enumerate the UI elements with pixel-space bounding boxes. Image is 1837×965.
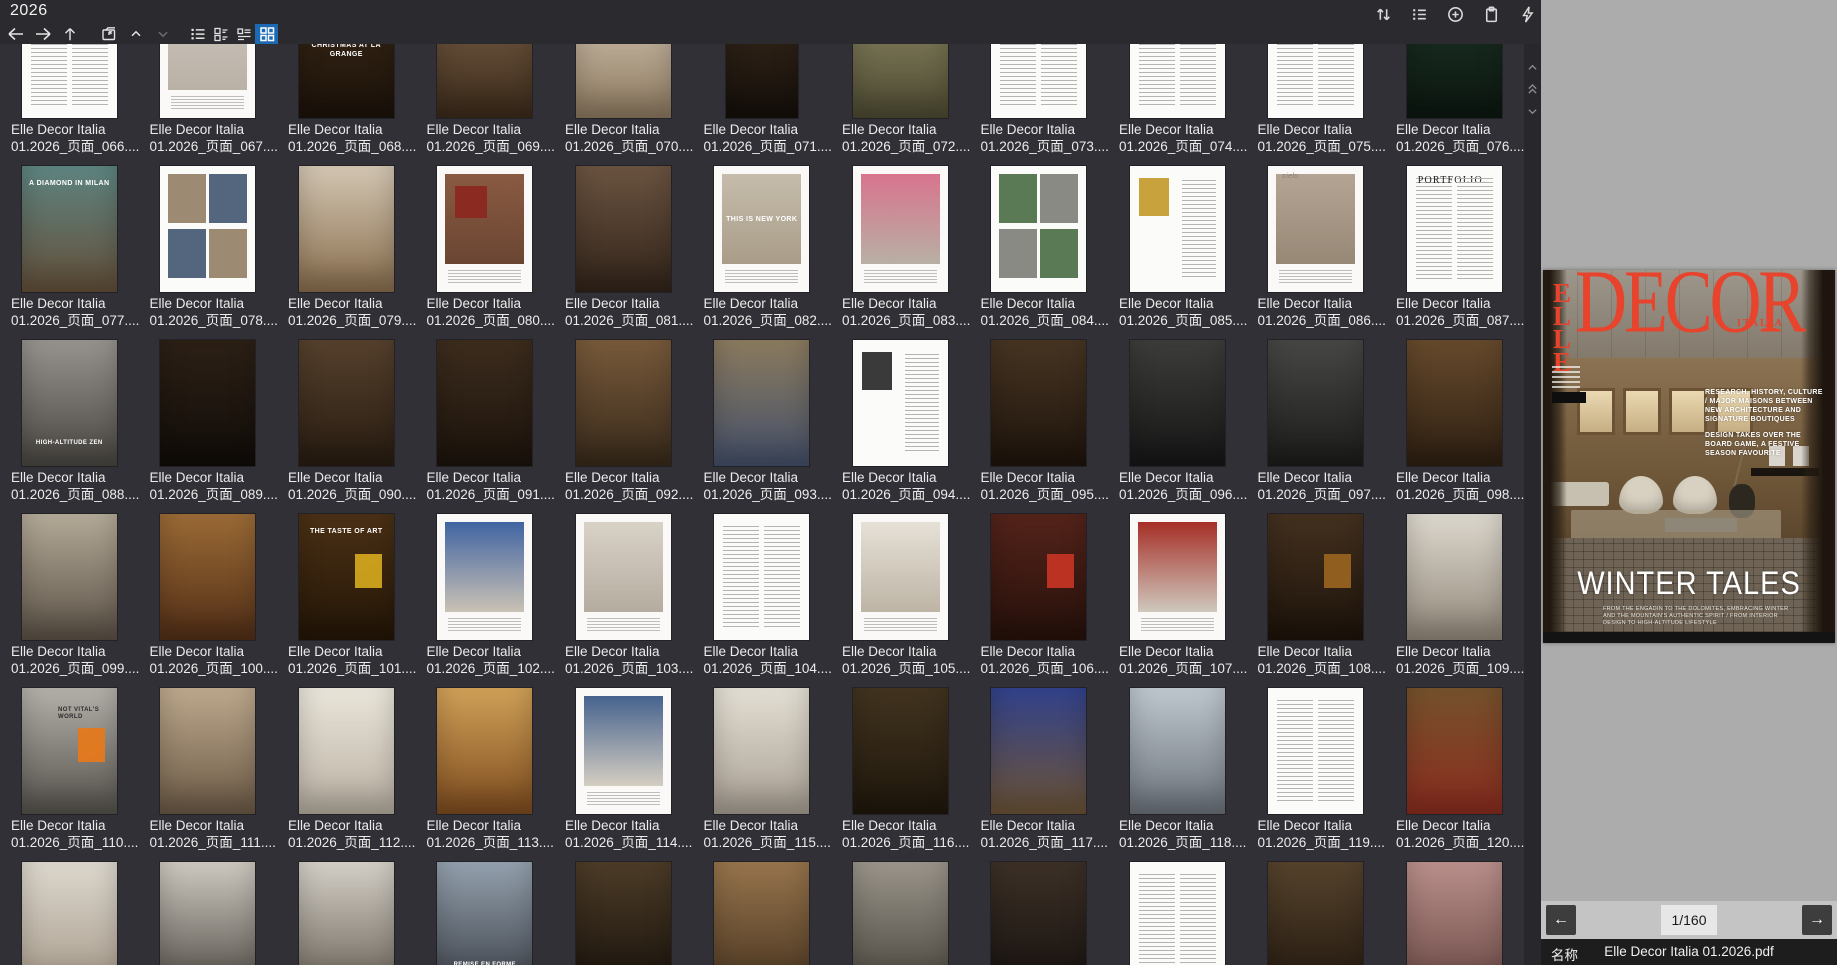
thumbnail-label: Elle Decor Italia 01.2026_页面_102.... [416, 640, 555, 677]
thumbnail-label-line1: Elle Decor Italia [427, 643, 551, 660]
thumbnail-label-line2: 01.2026_页面_104.... [704, 660, 828, 677]
page-thumbnail-image [437, 44, 532, 118]
up-arrow-icon[interactable] [59, 25, 81, 44]
cover-table-decoration [1665, 518, 1737, 532]
parent-folder-icon[interactable] [98, 25, 120, 44]
thumbnail-label-line2: 01.2026_页面_105.... [842, 660, 966, 677]
page-thumbnail-image: THIS IS NEW YORK [714, 166, 809, 292]
thumbnail-cell[interactable]: Elle Decor Italia 01.2026_页面_109.... [1385, 508, 1524, 682]
thumbnail-label-line1: Elle Decor Italia [704, 295, 828, 312]
thumbnail-cell[interactable]: Elle Decor Italia 01.2026_页面_079.... [277, 160, 416, 334]
thumbnail-label-line1: Elle Decor Italia [1258, 469, 1382, 486]
thumbnail-cell[interactable]: Elle Decor Italia 01.2026_页面_108.... [1247, 508, 1386, 682]
thumbnail-cell[interactable]: Elle Decor Italia 01.2026_页面_089.... [139, 334, 278, 508]
page-thumbnail-image [853, 166, 948, 292]
thumbnail-label: Elle Decor Italia 01.2026_页面_066.... [0, 118, 139, 155]
thumbnail-cell[interactable]: Elle Decor Italia 01.2026_页面_078.... [139, 160, 278, 334]
thumbnail-label-line1: Elle Decor Italia [1119, 295, 1243, 312]
thumbnail-cell[interactable]: Elle Decor Italia 01.2026_页面_117.... [970, 682, 1109, 856]
thumbnail-cell[interactable]: Elle Decor Italia 01.2026_页面_111.... [139, 682, 278, 856]
page-thumbnail-image: PORTFOLIO. [1407, 166, 1502, 292]
thumbnail-label-line1: Elle Decor Italia [150, 121, 274, 138]
thumbnail-label-line2: 01.2026_页面_102.... [427, 660, 551, 677]
thumbnail-label-line2: 01.2026_页面_078.... [150, 312, 274, 329]
thumbnail-cell[interactable] [831, 856, 970, 965]
thumbnail-cell[interactable]: Elle Decor Italia 01.2026_页面_090.... [277, 334, 416, 508]
thumbnail-label: Elle Decor Italia 01.2026_页面_115.... [693, 814, 832, 851]
thumbnail-cell[interactable]: Elle Decor Italia 01.2026_页面_085.... [1108, 160, 1247, 334]
page-thumbnail-image [576, 514, 671, 640]
thumbnail-label: Elle Decor Italia 01.2026_页面_092.... [554, 466, 693, 503]
page-thumbnail-image [1407, 862, 1502, 965]
page-down-icon[interactable] [1524, 100, 1541, 122]
view-mode-thumbnails[interactable] [255, 24, 278, 44]
sort-icon[interactable] [1374, 5, 1393, 24]
cover-brand-decor: DECOR [1575, 270, 1803, 348]
thumbnail-label: Elle Decor Italia 01.2026_页面_117.... [970, 814, 1109, 851]
thumbnail-cell[interactable] [1108, 856, 1247, 965]
thumbnail-label: Elle Decor Italia 01.2026_页面_106.... [970, 640, 1109, 677]
thumbnail-label: Elle Decor Italia 01.2026_页面_119.... [1247, 814, 1386, 851]
view-mode-medium-icons[interactable] [209, 24, 232, 44]
cover-window-decoration [1669, 388, 1707, 435]
panel-footer: 名称 Elle Decor Italia 01.2026.pdf [1541, 939, 1837, 965]
view-mode-list[interactable] [186, 24, 209, 44]
thumbnail-cell[interactable]: Elle Decor Italia 01.2026_页面_095.... [970, 334, 1109, 508]
thumbnail-cell[interactable]: THE TASTE OF ART Elle Decor Italia 01.20… [277, 508, 416, 682]
thumbnail-label-line2: 01.2026_页面_082.... [704, 312, 828, 329]
thumbnail-label-line2: 01.2026_页面_097.... [1258, 486, 1382, 503]
thumbnail-cell[interactable]: Elle Decor Italia 01.2026_页面_081.... [554, 160, 693, 334]
thumbnail-cell[interactable]: Elle Decor Italia 01.2026_页面_069.... [416, 44, 555, 160]
page-thumbnail-image [437, 166, 532, 292]
page-thumbnail-image [1130, 514, 1225, 640]
page-thumbnail-image [160, 44, 255, 118]
thumbnail-label: Elle Decor Italia 01.2026_页面_093.... [693, 466, 832, 503]
page-thumbnail-image [1268, 688, 1363, 814]
thumbnail-cell[interactable]: HIGH-ALTITUDE ZEN Elle Decor Italia 01.2… [0, 334, 139, 508]
thumbnail-label-line2: 01.2026_页面_115.... [704, 834, 828, 851]
thumbnail-label: Elle Decor Italia 01.2026_页面_107.... [1108, 640, 1247, 677]
page-thumbnail-image [160, 688, 255, 814]
thumbnail-grid: Elle Decor Italia 01.2026_页面_066.... Ell… [0, 44, 1524, 965]
view-mode-details[interactable] [232, 24, 255, 44]
thumbnail-label-line2: 01.2026_页面_080.... [427, 312, 551, 329]
thumbnail-label-line2: 01.2026_页面_090.... [288, 486, 412, 503]
thumbnail-label-line1: Elle Decor Italia [1119, 817, 1243, 834]
thumbnail-label: Elle Decor Italia 01.2026_页面_084.... [970, 292, 1109, 329]
thumbnail-label-line2: 01.2026_页面_103.... [565, 660, 689, 677]
thumbnail-cell[interactable]: CHRISTMAS AT LA GRANGE Elle Decor Italia… [277, 44, 416, 160]
thumbnail-label-line2: 01.2026_页面_069.... [427, 138, 551, 155]
thumbnail-label: Elle Decor Italia 01.2026_页面_101.... [277, 640, 416, 677]
thumbnail-cell[interactable]: Elle Decor Italia 01.2026_页面_080.... [416, 160, 555, 334]
toolbar [0, 24, 1541, 44]
page-thumbnail-image [160, 340, 255, 466]
expand-down-icon[interactable] [152, 25, 174, 44]
thumbnail-cell[interactable]: Elle Decor Italia 01.2026_页面_096.... [1108, 334, 1247, 508]
thumbnail-label: Elle Decor Italia 01.2026_页面_083.... [831, 292, 970, 329]
thumbnail-label: Elle Decor Italia 01.2026_页面_104.... [693, 640, 832, 677]
thumbnail-cell[interactable] [554, 856, 693, 965]
thumbnail-cell[interactable] [139, 856, 278, 965]
thumbnail-cell[interactable]: Elle Decor Italia 01.2026_页面_098.... [1385, 334, 1524, 508]
thumbnail-label-line1: Elle Decor Italia [11, 469, 135, 486]
page-thumbnail-image [853, 862, 948, 965]
cover-headline-1: RESEARCH, HISTORY, CULTURE / MAJOR MAISO… [1705, 388, 1825, 424]
thumbnail-label-line2: 01.2026_页面_094.... [842, 486, 966, 503]
thumbnail-label: Elle Decor Italia 01.2026_页面_096.... [1108, 466, 1247, 503]
thumbnail-cell[interactable] [1247, 856, 1386, 965]
thumbnail-label: Elle Decor Italia 01.2026_页面_103.... [554, 640, 693, 677]
page-thumbnail-image [991, 44, 1086, 118]
thumbnail-label-line1: Elle Decor Italia [842, 295, 966, 312]
thumbnail-label-line2: 01.2026_页面_096.... [1119, 486, 1243, 503]
page-thumbnail-image [714, 688, 809, 814]
cover-subtitle: FROM THE ENGADIN TO THE DOLOMITES, EMBRA… [1603, 606, 1789, 627]
thumbnail-label-line1: Elle Decor Italia [288, 643, 412, 660]
page-thumbnail-image [991, 862, 1086, 965]
zoom-in-icon[interactable] [1446, 5, 1465, 24]
thumbnail-label-line1: Elle Decor Italia [150, 643, 274, 660]
thumbnail-label-line2: 01.2026_页面_100.... [150, 660, 274, 677]
thumbnail-label: Elle Decor Italia 01.2026_页面_094.... [831, 466, 970, 503]
thumbnail-label-line2: 01.2026_页面_120.... [1396, 834, 1520, 851]
thumbnail-label-line2: 01.2026_页面_107.... [1119, 660, 1243, 677]
cover-title: WINTER TALES [1543, 566, 1835, 603]
thumbnail-label: Elle Decor Italia 01.2026_页面_114.... [554, 814, 693, 851]
thumbnail-cell[interactable]: Elle Decor Italia 01.2026_页面_074.... [1108, 44, 1247, 160]
thumbnail-label-line2: 01.2026_页面_066.... [11, 138, 135, 155]
forward-arrow-icon[interactable] [32, 25, 54, 44]
scroll-top-icon[interactable] [1524, 56, 1541, 78]
thumbnail-label: Elle Decor Italia 01.2026_页面_118.... [1108, 814, 1247, 851]
thumbnail-label: Elle Decor Italia 01.2026_页面_068.... [277, 118, 416, 155]
page-thumbnail-image [1130, 44, 1225, 118]
thumbnail-label-line2: 01.2026_页面_085.... [1119, 312, 1243, 329]
thumbnail-label-line1: Elle Decor Italia [11, 643, 135, 660]
thumbnail-label-line1: Elle Decor Italia [981, 817, 1105, 834]
thumbnail-label-line2: 01.2026_页面_111.... [150, 834, 274, 851]
cover-bottom-bar-decoration [1543, 632, 1835, 643]
thumbnail-label: Elle Decor Italia 01.2026_页面_089.... [139, 466, 278, 503]
thumbnail-cell[interactable]: Elle Decor Italia 01.2026_页面_107.... [1108, 508, 1247, 682]
page-thumbnail-image [1268, 340, 1363, 466]
thumbnail-cell[interactable]: Elle Decor Italia 01.2026_页面_099.... [0, 508, 139, 682]
thumbnail-cell[interactable]: Elle Decor Italia 01.2026_页面_075.... [1247, 44, 1386, 160]
thumbnail-cell[interactable]: Elle Decor Italia 01.2026_页面_100.... [139, 508, 278, 682]
page-thumbnail-image [1407, 44, 1502, 118]
thumbnail-label-line2: 01.2026_页面_114.... [565, 834, 689, 851]
back-arrow-icon[interactable] [5, 25, 27, 44]
thumbnail-label-line1: Elle Decor Italia [1396, 295, 1520, 312]
thumbnail-label-line2: 01.2026_页面_070.... [565, 138, 689, 155]
thumbnail-label-line1: Elle Decor Italia [150, 817, 274, 834]
thumbnail-label: Elle Decor Italia 01.2026_页面_086.... [1247, 292, 1386, 329]
thumbnail-cell[interactable]: Elle Decor Italia 01.2026_页面_073.... [970, 44, 1109, 160]
thumbnail-cell[interactable]: Elle Decor Italia 01.2026_页面_092.... [554, 334, 693, 508]
thumbnail-cell[interactable]: Elle Decor Italia 01.2026_页面_094.... [831, 334, 970, 508]
thumbnail-cell[interactable] [970, 856, 1109, 965]
thumbnail-label-line1: Elle Decor Italia [150, 295, 274, 312]
thumbnail-cell[interactable]: Elle Decor Italia 01.2026_页面_120.... [1385, 682, 1524, 856]
thumbnail-cell[interactable]: PORTFOLIO. Elle Decor Italia 01.2026_页面_… [1385, 160, 1524, 334]
page-thumbnail-image [299, 166, 394, 292]
thumbnail-label-line2: 01.2026_页面_073.... [981, 138, 1105, 155]
page-thumbnail-image [160, 862, 255, 965]
thumbnail-label-line2: 01.2026_页面_091.... [427, 486, 551, 503]
thumbnail-label-line2: 01.2026_页面_113.... [427, 834, 551, 851]
thumbnail-label-line2: 01.2026_页面_089.... [150, 486, 274, 503]
page-thumbnail-image [991, 166, 1086, 292]
thumbnail-cell[interactable]: Elle Decor Italia 01.2026_页面_102.... [416, 508, 555, 682]
thumbnail-label-line1: Elle Decor Italia [565, 295, 689, 312]
thumbnail-label-line2: 01.2026_页面_077.... [11, 312, 135, 329]
thumbnail-label-line2: 01.2026_页面_116.... [842, 834, 966, 851]
thumbnail-cell[interactable] [1385, 856, 1524, 965]
page-thumbnail-image [576, 166, 671, 292]
page-thumbnail-image [299, 340, 394, 466]
thumbnail-label-line2: 01.2026_页面_071.... [704, 138, 828, 155]
thumbnail-label: Elle Decor Italia 01.2026_页面_071.... [693, 118, 832, 155]
thumbnail-label-line2: 01.2026_页面_095.... [981, 486, 1105, 503]
thumbnail-label-line1: Elle Decor Italia [704, 817, 828, 834]
thumbnail-label-line2: 01.2026_页面_084.... [981, 312, 1105, 329]
thumbnail-cell[interactable]: Elle Decor Italia 01.2026_页面_072.... [831, 44, 970, 160]
thumbnail-cell[interactable]: Elle Decor Italia 01.2026_页面_115.... [693, 682, 832, 856]
page-thumbnail-image [853, 688, 948, 814]
page-thumbnail-image [437, 688, 532, 814]
thumbnail-label-line1: Elle Decor Italia [981, 121, 1105, 138]
thumbnail-label: Elle Decor Italia 01.2026_页面_090.... [277, 466, 416, 503]
thumbnail-cell[interactable] [0, 856, 139, 965]
thumbnail-cell[interactable]: REMISE EN FORME [416, 856, 555, 965]
thumbnail-cell[interactable]: Elle Decor Italia 01.2026_页面_112.... [277, 682, 416, 856]
thumbnail-cell[interactable]: Elle Decor Italia 01.2026_页面_070.... [554, 44, 693, 160]
page-thumbnail-image [160, 514, 255, 640]
thumbnail-label-line2: 01.2026_页面_092.... [565, 486, 689, 503]
thumbnail-label: Elle Decor Italia 01.2026_页面_110.... [0, 814, 139, 851]
thumbnail-label-line2: 01.2026_页面_067.... [150, 138, 274, 155]
collapse-up-icon[interactable] [125, 25, 147, 44]
thumbnail-label-line2: 01.2026_页面_072.... [842, 138, 966, 155]
thumbnail-label-line2: 01.2026_页面_088.... [11, 486, 135, 503]
thumbnail-label-line1: Elle Decor Italia [427, 295, 551, 312]
page-thumbnail-image [1407, 340, 1502, 466]
thumbnail-cell[interactable] [693, 856, 832, 965]
thumbnail-label-line2: 01.2026_页面_106.... [981, 660, 1105, 677]
thumbnail-cell[interactable]: Elle Decor Italia 01.2026_页面_083.... [831, 160, 970, 334]
list-options-icon[interactable] [1410, 5, 1429, 24]
thumbnail-label: Elle Decor Italia 01.2026_页面_078.... [139, 292, 278, 329]
thumbnail-label: Elle Decor Italia 01.2026_页面_069.... [416, 118, 555, 155]
thumbnail-cell[interactable]: Elle Decor Italia 01.2026_页面_066.... [0, 44, 139, 160]
page-thumbnail-image [1407, 514, 1502, 640]
thumbnail-cell[interactable] [277, 856, 416, 965]
thumbnail-label: Elle Decor Italia 01.2026_页面_082.... [693, 292, 832, 329]
thumbnail-label-line1: Elle Decor Italia [981, 469, 1105, 486]
page-thumbnail-image [437, 514, 532, 640]
thumbnail-label-line1: Elle Decor Italia [704, 121, 828, 138]
page-thumbnail-image [22, 862, 117, 965]
thumbnail-label-line2: 01.2026_页面_099.... [11, 660, 135, 677]
thumbnail-label-line2: 01.2026_页面_118.... [1119, 834, 1243, 851]
quick-actions-icon[interactable] [1518, 5, 1537, 24]
page-thumbnail-image [1130, 340, 1225, 466]
thumbnail-label-line1: Elle Decor Italia [1258, 817, 1382, 834]
thumbnail-label: Elle Decor Italia 01.2026_页面_111.... [139, 814, 278, 851]
thumbnail-label: Elle Decor Italia 01.2026_页面_074.... [1108, 118, 1247, 155]
thumbnail-label-line2: 01.2026_页面_101.... [288, 660, 412, 677]
page-thumbnail-image: THE TASTE OF ART [299, 514, 394, 640]
page-thumbnail-image [576, 862, 671, 965]
thumbnail-label: Elle Decor Italia 01.2026_页面_108.... [1247, 640, 1386, 677]
page-thumbnail-image [991, 688, 1086, 814]
thumbnail-label-line2: 01.2026_页面_083.... [842, 312, 966, 329]
thumbnail-label-line1: Elle Decor Italia [288, 295, 412, 312]
thumbnail-label: Elle Decor Italia 01.2026_页面_100.... [139, 640, 278, 677]
thumbnail-label-line2: 01.2026_页面_081.... [565, 312, 689, 329]
thumbnail-label-line1: Elle Decor Italia [704, 643, 828, 660]
thumbnail-label: Elle Decor Italia 01.2026_页面_097.... [1247, 466, 1386, 503]
preview-panel: ELLE DECOR ITALIA RESEARCH, HISTORY, CUL… [1541, 0, 1837, 965]
thumbnail-label-line1: Elle Decor Italia [1119, 643, 1243, 660]
thumbnail-cell[interactable]: THIS IS NEW YORK Elle Decor Italia 01.20… [693, 160, 832, 334]
thumbnail-label-line1: Elle Decor Italia [11, 121, 135, 138]
page-thumbnail-image: REMISE EN FORME [437, 862, 532, 965]
thumbnail-label-line2: 01.2026_页面_110.... [11, 834, 135, 851]
thumbnail-label-line1: Elle Decor Italia [1258, 295, 1382, 312]
thumbnail-cell[interactable]: Elle Decor Italia 01.2026_页面_071.... [693, 44, 832, 160]
thumbnail-label: Elle Decor Italia 01.2026_页面_067.... [139, 118, 278, 155]
thumbnail-label-line1: Elle Decor Italia [842, 469, 966, 486]
window-title: 2026 [10, 2, 48, 20]
thumbnail-label-line1: Elle Decor Italia [288, 469, 412, 486]
thumbnail-cell[interactable]: Elle Decor Italia 01.2026_页面_114.... [554, 682, 693, 856]
thumbnail-cell[interactable]: Elle Decor Italia 01.2026_页面_103.... [554, 508, 693, 682]
clipboard-icon[interactable] [1482, 5, 1501, 24]
thumbnail-cell[interactable]: Elle Decor Italia 01.2026_页面_105.... [831, 508, 970, 682]
cover-headlines: RESEARCH, HISTORY, CULTURE / MAJOR MAISO… [1705, 388, 1825, 458]
thumbnail-label-line1: Elle Decor Italia [427, 121, 551, 138]
thumbnail-label: Elle Decor Italia 01.2026_页面_072.... [831, 118, 970, 155]
header-actions [1374, 5, 1537, 24]
page-thumbnail-image [714, 340, 809, 466]
thumbnail-label: Elle Decor Italia 01.2026_页面_080.... [416, 292, 555, 329]
thumbnail-label-line1: Elle Decor Italia [150, 469, 274, 486]
page-thumbnail-image [160, 166, 255, 292]
thumbnail-label-line2: 01.2026_页面_079.... [288, 312, 412, 329]
page-thumbnail-image [576, 340, 671, 466]
scrollbar-strip[interactable] [1524, 44, 1541, 965]
page-thumbnail-image [991, 340, 1086, 466]
page-thumbnail-image [853, 340, 948, 466]
cover-brand-elle: ELLE [1548, 278, 1575, 370]
thumbnail-cell[interactable]: Elle Decor Italia 01.2026_页面_067.... [139, 44, 278, 160]
page-up-icon[interactable] [1524, 78, 1541, 100]
thumbnail-cell[interactable]: Elle Decor Italia 01.2026_页面_104.... [693, 508, 832, 682]
thumbnail-label: Elle Decor Italia 01.2026_页面_081.... [554, 292, 693, 329]
thumbnail-cell[interactable]: A DIAMOND IN MILAN Elle Decor Italia 01.… [0, 160, 139, 334]
page-thumbnail-image [1268, 514, 1363, 640]
thumbnail-label-line1: Elle Decor Italia [565, 817, 689, 834]
cover-preview[interactable]: ELLE DECOR ITALIA RESEARCH, HISTORY, CUL… [1543, 270, 1835, 643]
cover-window-decoration [1623, 388, 1661, 435]
page-thumbnail-image [726, 44, 798, 118]
thumbnail-cell[interactable]: Elle Decor Italia 01.2026_页面_091.... [416, 334, 555, 508]
page-thumbnail-image [853, 514, 948, 640]
next-page-button[interactable]: → [1802, 905, 1832, 935]
thumbnail-cell[interactable]: Elle Decor Italia 01.2026_页面_113.... [416, 682, 555, 856]
prev-page-button[interactable]: ← [1546, 905, 1576, 935]
thumbnail-label: Elle Decor Italia 01.2026_页面_105.... [831, 640, 970, 677]
thumbnail-label-line1: Elle Decor Italia [704, 469, 828, 486]
thumbnail-label-line2: 01.2026_页面_086.... [1258, 312, 1382, 329]
page-thumbnail-image: A DIAMOND IN MILAN [22, 166, 117, 292]
thumbnail-label: Elle Decor Italia 01.2026_页面_070.... [554, 118, 693, 155]
thumbnail-cell[interactable]: Elle Decor Italia 01.2026_页面_076.... [1385, 44, 1524, 160]
thumbnail-label: Elle Decor Italia 01.2026_页面_087.... [1385, 292, 1524, 329]
thumbnail-cell[interactable]: Elle Decor Italia 01.2026_页面_084.... [970, 160, 1109, 334]
thumbnail-label-line2: 01.2026_页面_074.... [1119, 138, 1243, 155]
thumbnail-label-line1: Elle Decor Italia [1396, 121, 1520, 138]
page-thumbnail-image [22, 514, 117, 640]
thumbnail-cell[interactable]: NOT VITAL'S WORLD Elle Decor Italia 01.2… [0, 682, 139, 856]
thumbnail-label-line1: Elle Decor Italia [981, 295, 1105, 312]
page-thumbnail-image [576, 688, 671, 814]
thumbnail-label: Elle Decor Italia 01.2026_页面_079.... [277, 292, 416, 329]
thumbnail-label: Elle Decor Italia 01.2026_页面_109.... [1385, 640, 1524, 677]
thumbnail-label-line2: 01.2026_页面_117.... [981, 834, 1105, 851]
thumbnail-label-line2: 01.2026_页面_098.... [1396, 486, 1520, 503]
thumbnail-cell[interactable]: Elle Decor Italia 01.2026_页面_106.... [970, 508, 1109, 682]
thumbnail-label-line2: 01.2026_页面_068.... [288, 138, 412, 155]
thumbnail-label: Elle Decor Italia 01.2026_页面_085.... [1108, 292, 1247, 329]
thumbnail-label-line1: Elle Decor Italia [11, 817, 135, 834]
thumbnail-cell[interactable]: Elle Decor Italia 01.2026_页面_116.... [831, 682, 970, 856]
page-thumbnail-image: cielo [1268, 166, 1363, 292]
thumbnail-label: Elle Decor Italia 01.2026_页面_077.... [0, 292, 139, 329]
thumbnail-cell[interactable]: Elle Decor Italia 01.2026_页面_097.... [1247, 334, 1386, 508]
page-thumbnail-image [1268, 44, 1363, 118]
title-bar: 2026 [0, 0, 1541, 24]
name-column-label: 名称 [1551, 944, 1578, 964]
thumbnail-label-line2: 01.2026_页面_109.... [1396, 660, 1520, 677]
thumbnail-cell[interactable]: Elle Decor Italia 01.2026_页面_119.... [1247, 682, 1386, 856]
thumbnail-cell[interactable]: Elle Decor Italia 01.2026_页面_093.... [693, 334, 832, 508]
thumbnail-label-line1: Elle Decor Italia [288, 817, 412, 834]
page-thumbnail-image [299, 862, 394, 965]
thumbnail-label: Elle Decor Italia 01.2026_页面_116.... [831, 814, 970, 851]
page-thumbnail-image [1268, 862, 1363, 965]
thumbnail-label-line1: Elle Decor Italia [565, 121, 689, 138]
thumbnail-label-line2: 01.2026_页面_112.... [288, 834, 412, 851]
thumbnail-cell[interactable]: cielo Elle Decor Italia 01.2026_页面_086..… [1247, 160, 1386, 334]
thumbnail-cell[interactable]: Elle Decor Italia 01.2026_页面_118.... [1108, 682, 1247, 856]
page-thumbnail-image [576, 44, 671, 118]
thumbnail-label-line1: Elle Decor Italia [981, 643, 1105, 660]
thumbnail-label-line2: 01.2026_页面_076.... [1396, 138, 1520, 155]
thumbnail-label-line1: Elle Decor Italia [565, 469, 689, 486]
thumbnail-label: Elle Decor Italia 01.2026_页面_076.... [1385, 118, 1524, 155]
thumbnail-label: Elle Decor Italia 01.2026_页面_088.... [0, 466, 139, 503]
page-thumbnail-image: HIGH-ALTITUDE ZEN [22, 340, 117, 466]
page-thumbnail-image: NOT VITAL'S WORLD [22, 688, 117, 814]
thumbnail-label-line1: Elle Decor Italia [842, 817, 966, 834]
page-thumbnail-image [714, 514, 809, 640]
thumbnail-label: Elle Decor Italia 01.2026_页面_113.... [416, 814, 555, 851]
page-thumbnail-image [1130, 688, 1225, 814]
